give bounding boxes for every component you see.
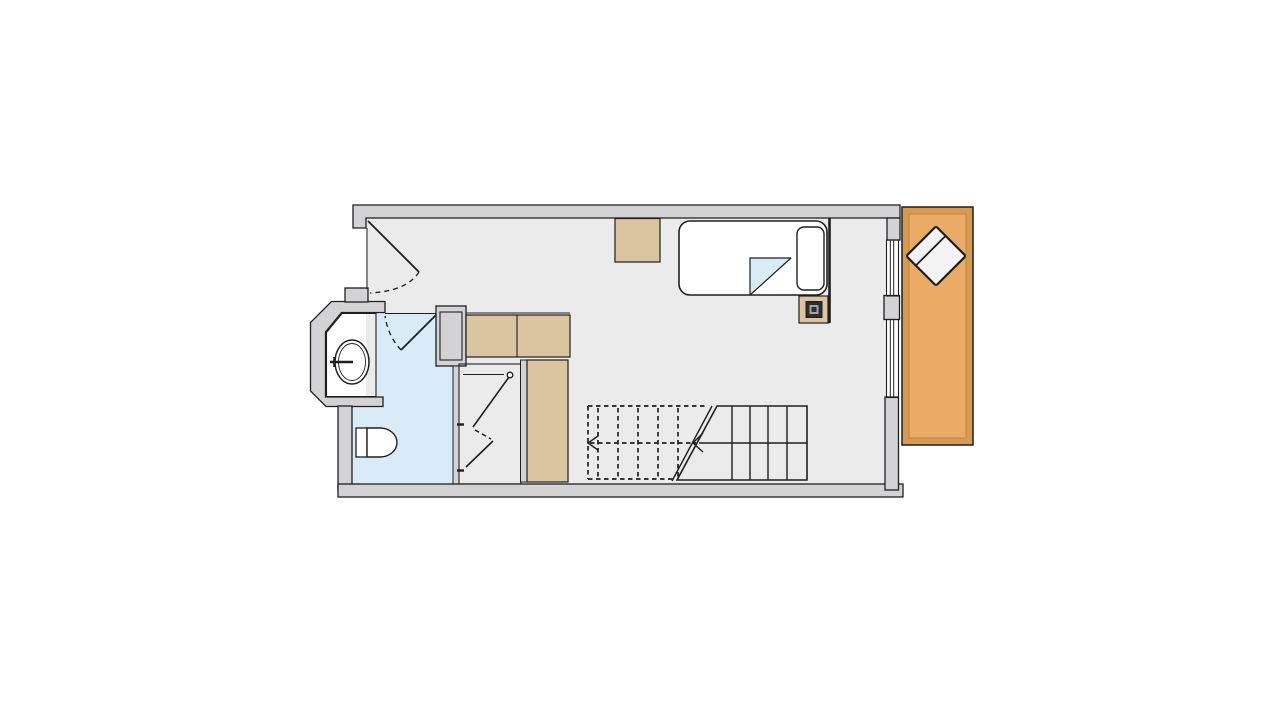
toilet-bowl [367,428,397,457]
window-lower [887,320,899,398]
entrance-lower-jamb-wall [345,288,368,302]
window-upper [887,240,899,296]
lower-left-wall [338,406,352,490]
bottom-wall [338,484,903,497]
closet-right-wall [521,360,528,482]
floor-plan [0,0,1280,720]
storage-box [615,219,660,263]
wood-deck [902,207,973,445]
bed-pillow [797,227,824,290]
floor-plan-canvas [0,0,1280,720]
counter-top [466,315,570,357]
window-frame [887,320,899,398]
wardrobe-column [527,360,568,482]
right-wall-bottom [885,397,899,490]
single-bed [679,221,827,295]
right-wall-top [887,218,900,240]
window-frame [887,240,899,296]
table-lamp-core [812,307,817,312]
toilet-tank [356,428,367,457]
folding-door-pivot [507,372,513,378]
right-wall-mullion [884,296,900,320]
